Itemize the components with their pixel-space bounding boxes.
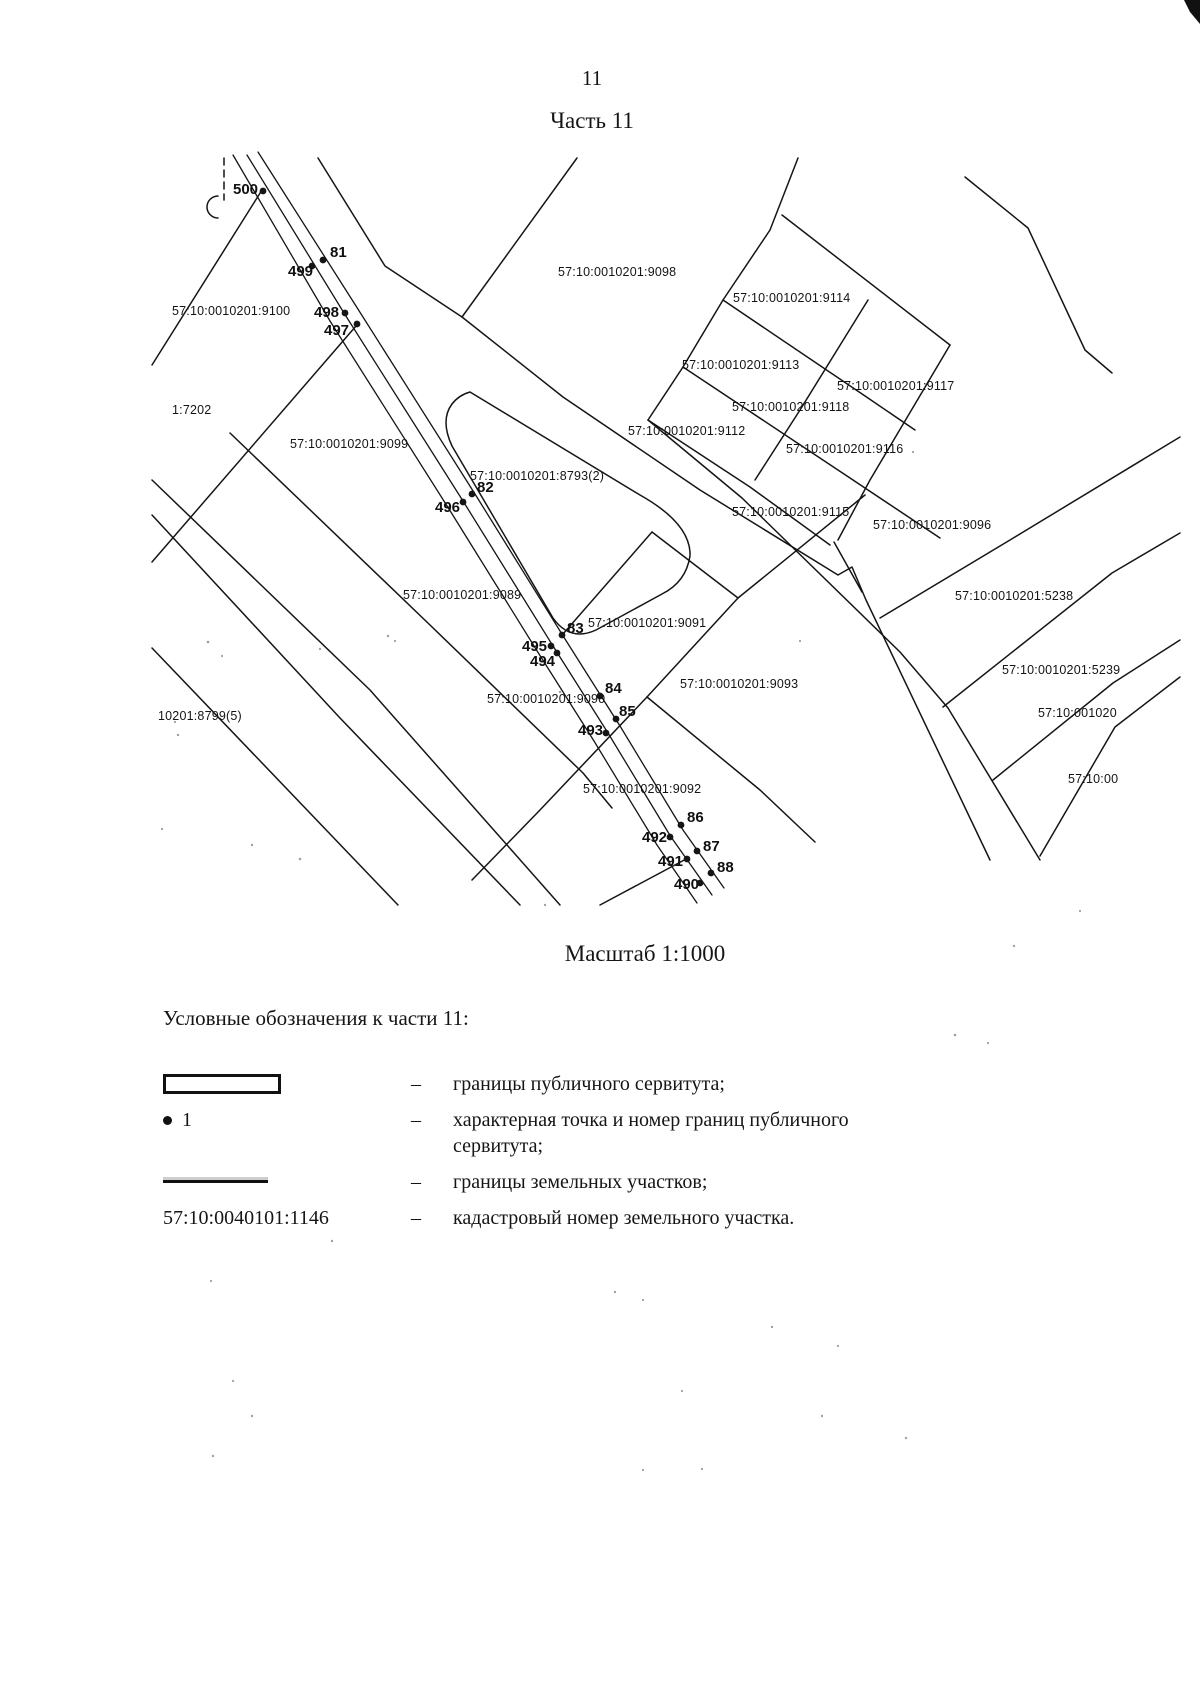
legend-dash: – [405,1169,453,1195]
point-label: 82 [477,479,494,496]
legend-item-characteristic-point: 1 – характерная точка и номер границ пуб… [163,1107,1063,1159]
point-dot-number: 1 [182,1109,192,1131]
parcel-label: 57:10:0010201:9113 [682,358,799,372]
survey-marker-icon [207,158,224,218]
point-label: 87 [703,838,720,855]
legend-item-text: границы публичного сервитута; [453,1071,943,1097]
parcel-label: 57:10:0010201:9116 [786,442,903,456]
parcel-label: 57:10:0010201:5238 [955,589,1073,603]
point-label: 85 [619,703,636,720]
point-label: 499 [288,263,313,280]
legend-item-cadastral-number: 57:10:0040101:1146 – кадастровый номер з… [163,1205,1063,1231]
legend-dash: – [405,1071,453,1097]
point-dot [469,491,476,498]
parcel-label: 57:10:0010201:9115 [732,505,849,519]
parcel-label: 57:10:0010201:9098 [558,265,676,279]
legend-item-text: характерная точка и номер границ публичн… [453,1107,943,1159]
point-dot-icon [163,1116,172,1125]
parcel-label: 57:10:0010201:9118 [732,400,849,414]
point-label: 83 [567,620,584,637]
point-label: 498 [314,304,339,321]
parcel-label: 1:7202 [172,403,211,417]
scan-corner-artifact [1184,0,1200,24]
boundary-line-icon [163,1180,268,1183]
parcel-label: 57:10:0010201:9090 [487,692,605,706]
legend-dash: – [405,1107,453,1133]
point-dot [342,310,349,317]
point-dot [684,856,691,863]
parcel-label: 57:10:00 [1068,772,1118,786]
point-dot [678,822,685,829]
point-dot [260,188,267,195]
point-label: 492 [642,829,667,846]
legend-dash: – [405,1205,453,1231]
point-label: 86 [687,809,704,826]
parcel-label: 57:10:0010201:9089 [403,588,521,602]
point-dot [667,834,674,841]
point-label: 81 [330,244,347,261]
parcel-label: 57:10:0010201:9092 [583,782,701,796]
parcel-label: 57:10:0010201:9093 [680,677,798,691]
legend-item-servitude-boundary: – границы публичного сервитута; [163,1071,1063,1097]
point-label: 88 [717,859,734,876]
point-label: 84 [605,680,622,697]
legend-item-parcel-boundary: – границы земельных участков; [163,1169,1063,1195]
point-dot [708,870,715,877]
point-label: 490 [674,876,699,893]
parcel-label: 57:10:0010201:9114 [733,291,850,305]
parcel-label: 57:10:0010201:9099 [290,437,408,451]
map-scale-caption: Масштаб 1:1000 [445,941,845,967]
parcel-label: 57:10:0010201:9117 [837,379,954,393]
parcel-label: 57:10:0010201:9091 [588,616,706,630]
point-dot [559,632,566,639]
point-dot [603,730,610,737]
legend: Условные обозначения к части 11: – грани… [163,1005,1063,1241]
parcel-label: 10201:8799(5) [158,709,242,723]
point-label: 497 [324,322,349,339]
point-dot [460,499,467,506]
parcel-label: 57:10:0010201:9096 [873,518,991,532]
point-dot [548,643,555,650]
cadastral-number-sample: 57:10:0040101:1146 [163,1205,405,1231]
point-label: 494 [530,653,555,670]
point-label: 491 [658,853,683,870]
cadastral-map [0,0,1200,1708]
point-label: 493 [578,722,603,739]
parcel-label: 57:10:001020 [1038,706,1117,720]
legend-item-text: границы земельных участков; [453,1169,943,1195]
parcel-label: 57:10:0010201:9100 [172,304,290,318]
point-label: 496 [435,499,460,516]
point-dot [320,257,327,264]
parcel-label: 57:10:0010201:9112 [628,424,745,438]
point-label: 500 [233,181,258,198]
servitude-bar-icon [163,1074,281,1094]
legend-heading: Условные обозначения к части 11: [163,1005,1063,1031]
legend-item-text: кадастровый номер земельного участка. [453,1205,943,1231]
point-dot [354,321,361,328]
parcel-label: 57:10:0010201:5239 [1002,663,1120,677]
point-dot [694,848,701,855]
document-page: { "colors": {"ink": "#151515", "paper": … [0,0,1200,1708]
